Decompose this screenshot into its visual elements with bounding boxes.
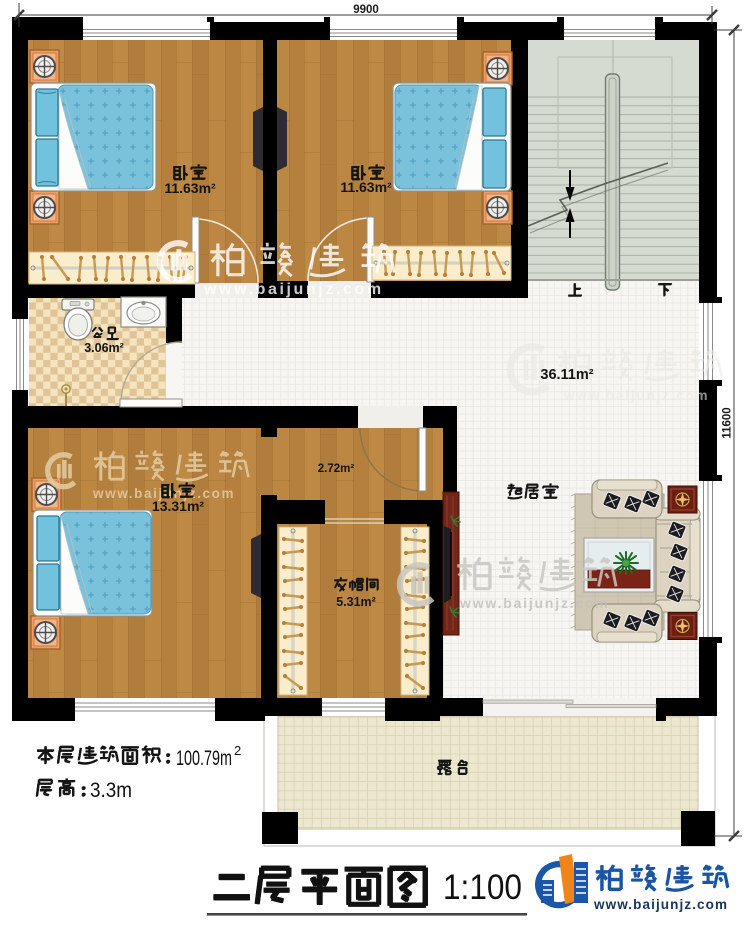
svg-text:www.baijunjz.com: www.baijunjz.com	[203, 281, 384, 298]
svg-text:2: 2	[234, 743, 241, 758]
svg-text:www.baijunjz.com: www.baijunjz.com	[593, 897, 728, 912]
svg-text:3.3m: 3.3m	[90, 779, 132, 802]
svg-text:9900: 9900	[353, 4, 379, 16]
svg-text:5.31m²: 5.31m²	[336, 595, 376, 609]
svg-text:36.11m²: 36.11m²	[540, 367, 593, 383]
svg-text:13.31m²: 13.31m²	[152, 498, 204, 514]
svg-text:3.06m²: 3.06m²	[84, 341, 124, 355]
svg-text:100.79m: 100.79m	[176, 747, 232, 770]
svg-text:11600: 11600	[722, 407, 734, 438]
svg-text:www.baijunjz.com: www.baijunjz.com	[459, 595, 610, 611]
svg-text:2.72m²: 2.72m²	[318, 463, 355, 475]
svg-text:www.baijunjz.com: www.baijunjz.com	[563, 388, 709, 403]
svg-text:11.63m²: 11.63m²	[340, 179, 392, 195]
svg-text:11.63m²: 11.63m²	[164, 180, 216, 196]
svg-text:1:100: 1:100	[443, 868, 522, 907]
